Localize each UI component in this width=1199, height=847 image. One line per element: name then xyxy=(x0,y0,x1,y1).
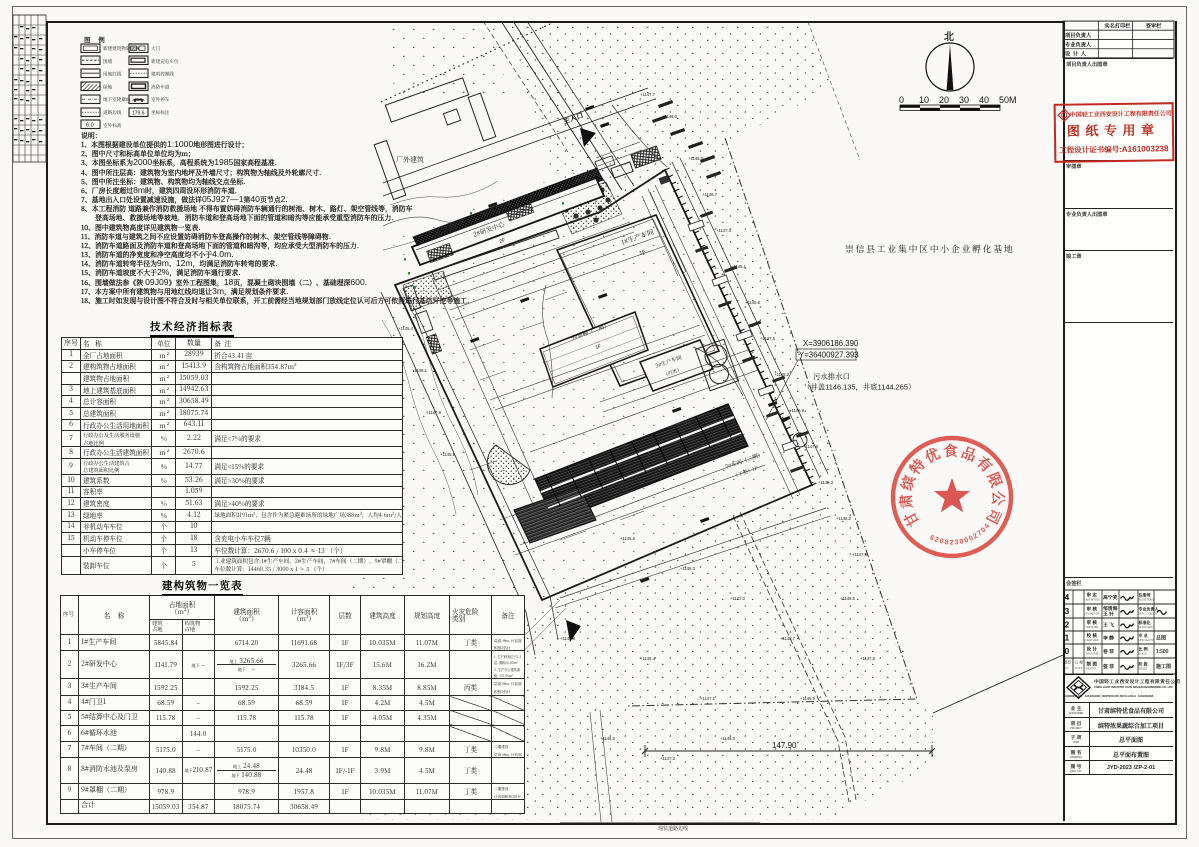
svg-text:DRAWN: DRAWN xyxy=(1086,667,1097,671)
svg-text:1: 1 xyxy=(1065,633,1070,643)
svg-text:NO.: NO. xyxy=(1064,666,1069,670)
svg-text:SPEC. LEADER: SPEC. LEADER xyxy=(1139,612,1157,616)
svg-text:REGISTERED: REGISTERED xyxy=(1139,598,1155,602)
svg-text:SCALE: SCALE xyxy=(1139,652,1148,656)
svg-text:施工图: 施工图 xyxy=(1156,663,1171,670)
svg-text:王 飞: 王 飞 xyxy=(1103,621,1114,628)
svg-text:CHECKER: CHECKER xyxy=(1086,638,1099,642)
svg-text:APPROVED: APPROVED xyxy=(1086,598,1101,602)
svg-text:签 菲: 签 菲 xyxy=(1102,663,1114,670)
svg-text:STANDARD: STANDARD xyxy=(1139,625,1153,629)
svg-text:模型: 模型 xyxy=(1064,660,1071,665)
svg-text:王 针: 王 针 xyxy=(1103,611,1114,618)
svg-text:1:500: 1:500 xyxy=(1156,648,1169,655)
svg-text:2: 2 xyxy=(1065,620,1070,630)
svg-text:SPECIALITY: SPECIALITY xyxy=(1139,638,1154,642)
svg-text:DESIGNED: DESIGNED xyxy=(1086,652,1100,656)
svg-text:0: 0 xyxy=(1065,646,1070,656)
svg-text:3: 3 xyxy=(1065,606,1070,616)
svg-text:日 期: 日 期 xyxy=(1075,660,1083,665)
svg-text:总图: 总图 xyxy=(1156,635,1166,642)
svg-text:4: 4 xyxy=(1065,592,1070,602)
svg-text:DATE: DATE xyxy=(1075,666,1083,670)
svg-text:EXAMINED: EXAMINED xyxy=(1086,612,1101,616)
svg-text:高宁笑: 高宁笑 xyxy=(1103,594,1118,601)
svg-text:PHASE: PHASE xyxy=(1139,667,1148,671)
svg-text:VERIFIER: VERIFIER xyxy=(1086,625,1099,629)
svg-text:李 静: 李 静 xyxy=(1102,634,1114,641)
svg-text:卷 菲: 卷 菲 xyxy=(1103,648,1114,655)
